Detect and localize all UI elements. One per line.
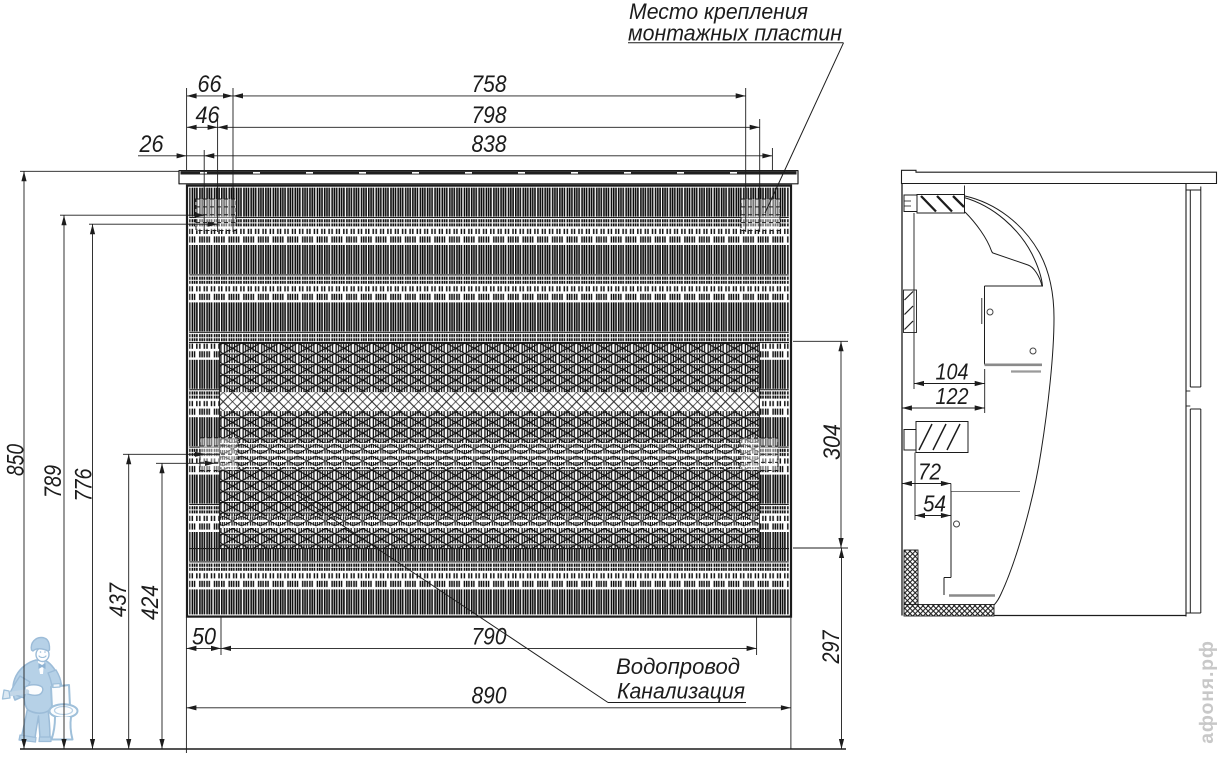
svg-text:437: 437 — [105, 582, 132, 617]
svg-text:Водопровод: Водопровод — [616, 654, 740, 679]
svg-text:72: 72 — [918, 459, 941, 485]
svg-text:афоня.рф: афоня.рф — [1196, 640, 1218, 744]
svg-text:54: 54 — [923, 491, 946, 517]
svg-text:798: 798 — [472, 102, 508, 129]
svg-text:297: 297 — [818, 629, 845, 664]
svg-text:46: 46 — [196, 102, 221, 129]
svg-text:789: 789 — [40, 465, 67, 498]
svg-text:838: 838 — [472, 131, 508, 158]
svg-text:50: 50 — [192, 624, 217, 651]
svg-text:Канализация: Канализация — [617, 679, 745, 704]
svg-text:104: 104 — [936, 359, 969, 385]
svg-text:890: 890 — [472, 683, 508, 710]
svg-text:424: 424 — [137, 585, 164, 620]
svg-text:26: 26 — [139, 131, 164, 158]
svg-text:850: 850 — [3, 443, 30, 476]
svg-text:790: 790 — [472, 624, 508, 651]
svg-text:66: 66 — [198, 71, 223, 98]
svg-text:776: 776 — [71, 468, 98, 502]
svg-text:758: 758 — [472, 71, 508, 98]
svg-text:монтажных пластин: монтажных пластин — [628, 21, 842, 46]
svg-text:122: 122 — [936, 383, 969, 409]
svg-text:304: 304 — [819, 424, 846, 460]
